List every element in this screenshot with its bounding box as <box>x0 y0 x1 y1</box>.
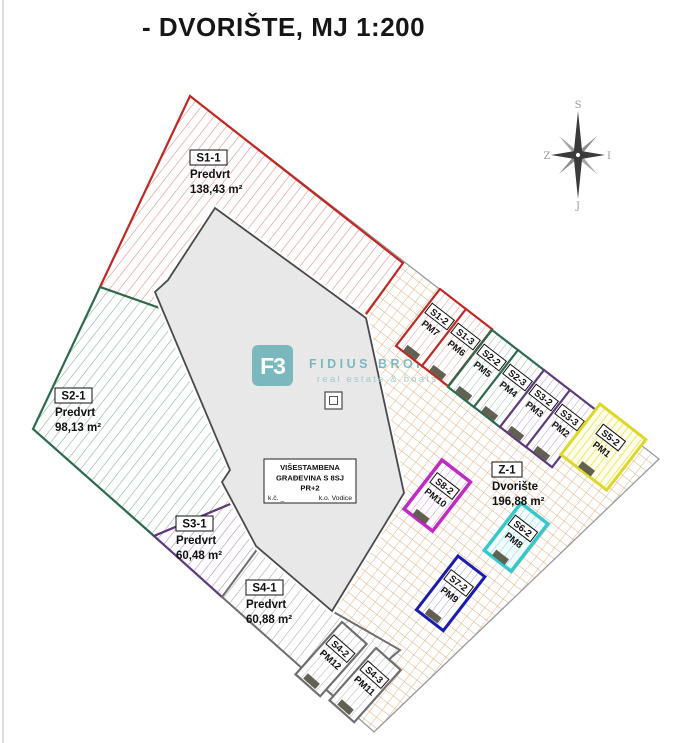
svg-text:60,88 m²: 60,88 m² <box>246 614 292 626</box>
svg-text:S4-1: S4-1 <box>252 583 277 595</box>
compass-letter-east: I <box>607 151 611 162</box>
site-plan-drawing: F3 FIDIUS BROKER real estate & boats S1-… <box>0 0 691 743</box>
svg-text:Z-1: Z-1 <box>498 465 516 477</box>
svg-text:S2-1: S2-1 <box>61 391 86 403</box>
compass-letter-north: S <box>575 100 582 111</box>
svg-text:Predvrt: Predvrt <box>55 407 95 419</box>
svg-text:S3-1: S3-1 <box>182 519 207 531</box>
compass-rose: S Z I J <box>540 100 616 212</box>
svg-text:138,43 m²: 138,43 m² <box>190 184 243 196</box>
watermark-tagline: real estate & boats <box>317 374 438 385</box>
svg-text:PR+2: PR+2 <box>300 484 319 493</box>
compass-letter-west: Z <box>544 151 551 162</box>
svg-text:k.č. _: k.č. _ <box>268 495 284 502</box>
fidius-broker-logo-glyph: F3 <box>260 353 285 379</box>
svg-text:Predvrt: Predvrt <box>190 169 230 181</box>
svg-text:VIŠESTAMBENA: VIŠESTAMBENA <box>280 463 340 472</box>
compass-letter-south: J <box>575 201 580 212</box>
svg-text:k.o. Vodice: k.o. Vodice <box>319 495 352 502</box>
svg-text:196,88 m²: 196,88 m² <box>492 496 545 508</box>
site-plan-page: - DVORIŠTE, MJ 1:200 <box>0 0 691 743</box>
svg-text:S1-1: S1-1 <box>196 153 221 165</box>
svg-text:60,48 m²: 60,48 m² <box>176 550 222 562</box>
svg-text:Predvrt: Predvrt <box>176 535 216 547</box>
svg-text:98,13 m²: 98,13 m² <box>55 422 101 434</box>
building-label-box: VIŠESTAMBENA GRAĐEVINA S 8SJ PR+2 k.č. _… <box>264 459 356 503</box>
svg-text:Dvorište: Dvorište <box>492 481 538 493</box>
svg-text:Predvrt: Predvrt <box>246 599 286 611</box>
svg-text:GRAĐEVINA S 8SJ: GRAĐEVINA S 8SJ <box>276 474 344 483</box>
